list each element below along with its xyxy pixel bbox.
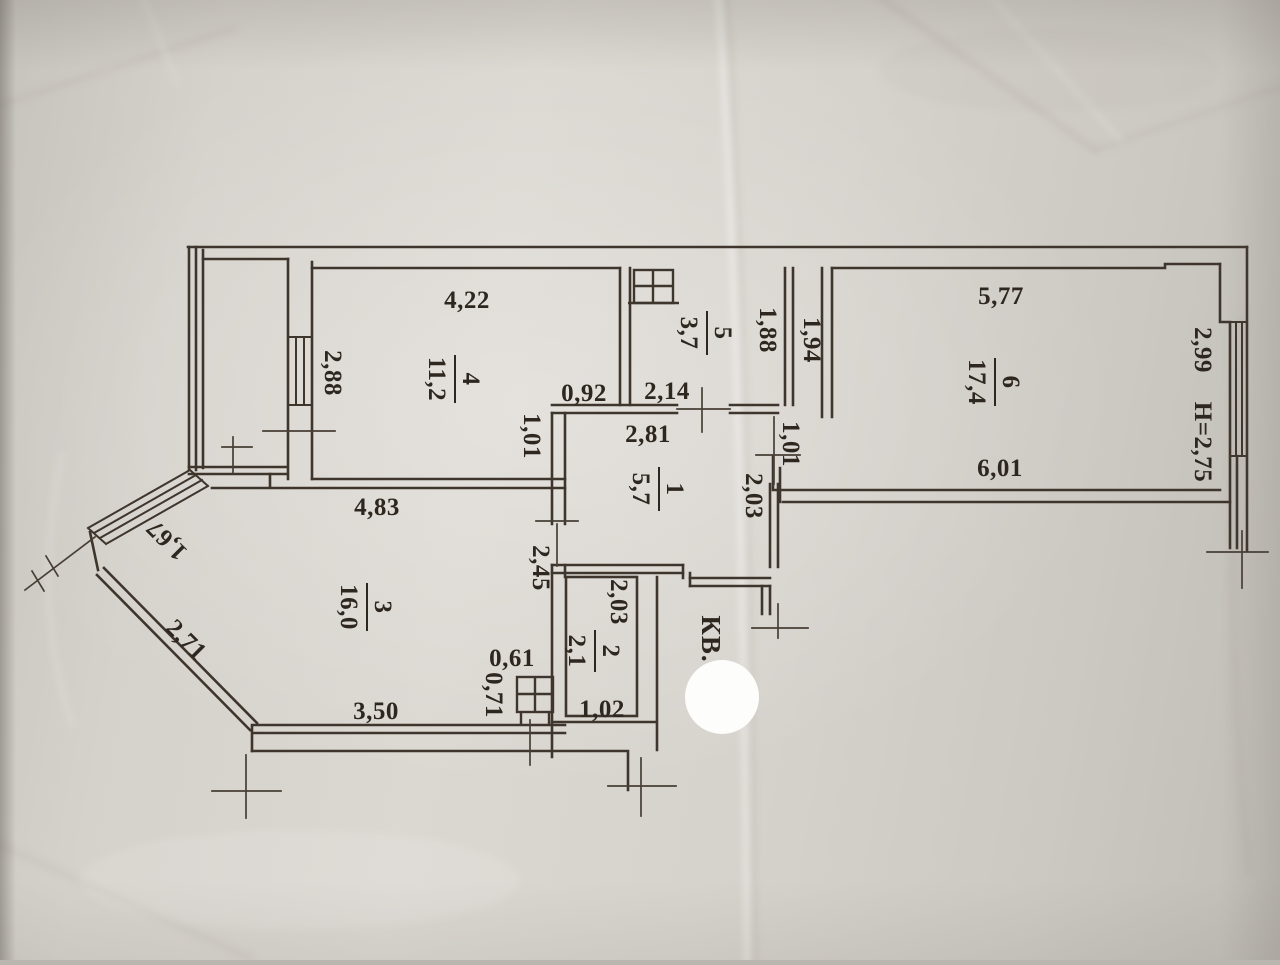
floor-plan-drawing: 4,22 0,92 2,14 5,77 6,01 2,81 4,83 3,50 …: [0, 0, 1280, 960]
room-number: 3: [369, 601, 396, 614]
extension-cross: [752, 604, 808, 638]
dim-ceiling-height: H=2,75: [1189, 402, 1216, 482]
room-label-3: 3 16,0: [335, 583, 396, 631]
dim-room5-width: 2,14: [644, 378, 690, 405]
extension-cross: [608, 758, 676, 816]
wall-balcony-outer: [189, 247, 203, 470]
dim-room3-vent-width: 0,61: [489, 645, 535, 672]
dim-shaft-wall: 1,94: [798, 317, 825, 363]
window-balcony-room4: [288, 337, 312, 405]
dim-room6-top-width: 5,77: [978, 283, 1024, 310]
room-label-6: 6 17,4: [963, 358, 1024, 406]
wall-room5-right: [785, 268, 793, 405]
room-area: 17,4: [963, 359, 990, 405]
wall-room6-top: [832, 264, 1220, 268]
dim-room1-door: 1,01: [777, 421, 804, 467]
wall-room3-top: [212, 474, 565, 488]
wall-entry-step: [683, 565, 690, 586]
wall-room4-left: [288, 259, 312, 479]
dim-room6-height: 2,99: [1189, 327, 1216, 373]
room-number: 6: [997, 376, 1024, 389]
dim-diagonal-wall: 2,71: [160, 614, 211, 665]
room-area: 5,7: [627, 473, 654, 506]
dim-room6-bottom-width: 6,01: [977, 455, 1023, 482]
dim-room3-bottom-width: 3,50: [353, 698, 399, 725]
room-area: 16,0: [335, 584, 362, 630]
dim-room4-width: 4,22: [444, 287, 490, 314]
dim-room2-height: 2,03: [605, 579, 632, 625]
room-label-4: 4 11,2: [423, 355, 484, 403]
dim-room4-notch-height: 1,01: [518, 413, 545, 459]
room-number: 5: [709, 327, 736, 340]
dim-room4-height: 2,88: [319, 350, 346, 396]
extension-cross: [212, 755, 281, 818]
extension-cross: [25, 537, 95, 591]
wall-room1-right: [770, 484, 778, 567]
vent-grid-icon: [628, 270, 679, 303]
redaction-sticker: [685, 660, 759, 734]
wall-corridor-top: [690, 578, 770, 586]
dim-room4-notch-width: 0,92: [561, 380, 607, 407]
room-label-5: 5 3,7: [675, 311, 736, 355]
dim-room3-vent-height: 0,71: [480, 672, 507, 718]
room-label-2: 2 2,1: [563, 630, 624, 672]
dim-room1-left: 2,45: [527, 545, 554, 591]
wall-balcony-bottom: [189, 467, 286, 474]
room-area: 2,1: [563, 635, 590, 668]
room-number: 1: [661, 483, 688, 496]
wall-room1-bottom: [552, 565, 683, 573]
dim-room1-width: 2,81: [625, 421, 671, 448]
room-number: 2: [597, 645, 624, 658]
dim-room2-width: 1,02: [579, 696, 625, 723]
dim-room5-height: 1,88: [754, 307, 781, 353]
dim-room3-top-width: 4,83: [354, 494, 400, 521]
room-area: 3,7: [675, 317, 702, 350]
wall-outer-bottom: [252, 751, 628, 790]
room-number: 4: [457, 373, 484, 386]
wall-corridor-right: [762, 586, 770, 614]
apartment-label: КВ.: [696, 615, 726, 662]
photographed-floor-plan: 4,22 0,92 2,14 5,77 6,01 2,81 4,83 3,50 …: [0, 0, 1280, 960]
wall-room4-room5-divider: [620, 268, 630, 405]
dim-diagonal-window: 1,67: [141, 514, 192, 565]
vent-grid-icon: [517, 677, 553, 725]
wall-room3-bottom: [252, 725, 565, 751]
dim-room1-right: 2,03: [740, 473, 767, 519]
room-label-1: 1 5,7: [627, 467, 688, 511]
room-area: 11,2: [423, 357, 450, 401]
